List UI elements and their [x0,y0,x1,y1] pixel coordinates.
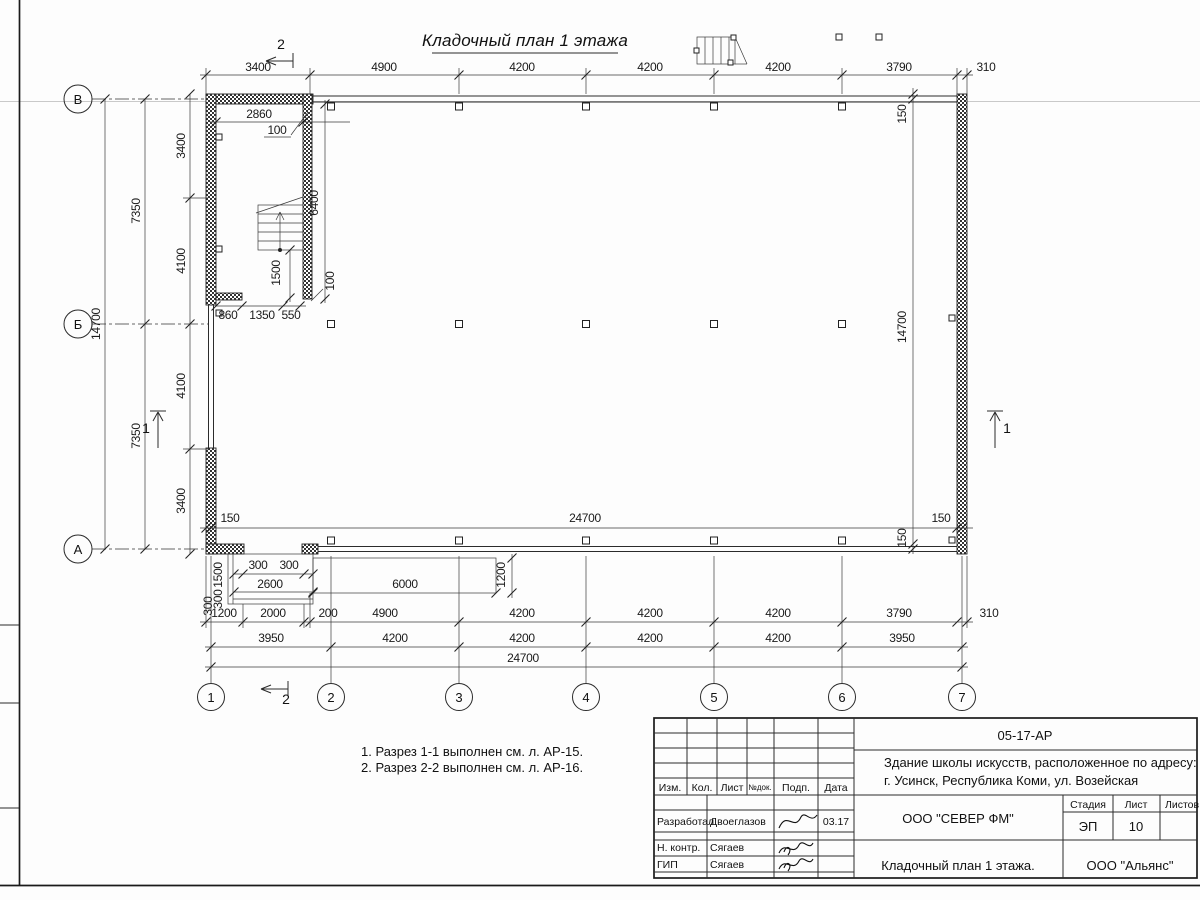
axis-bubble-v: В [74,92,83,107]
dim-label: 4200 [637,631,663,645]
dim-label: 4200 [509,631,535,645]
left-wall-lower [206,448,216,554]
sheet-number: 10 [1129,819,1143,834]
dim-label: 2860 [246,107,272,121]
axis-bubble-4: 4 [582,690,589,705]
col-izm: Изм. [659,782,682,794]
top-dimension-row: 3400 4900 4200 4200 4200 3790 310 [200,60,996,94]
dim-label: 4200 [509,60,535,74]
project-address-line2: г. Усинск, Республика Коми, ул. Возейска… [884,773,1138,788]
axis-bubble-1: 1 [207,690,214,705]
stair-start-dot [278,248,282,252]
dim-label: 4200 [637,606,663,620]
stair [256,197,303,252]
dim-label: 1200 [494,562,508,588]
dim-label: 6400 [307,190,321,216]
stair-stub-wall [216,293,242,300]
note-line-2: 2. Разрез 2-2 выполнен см. л. АР-16. [361,760,583,775]
col-data: Дата [824,782,847,794]
axis-bubble-6: 6 [838,690,845,705]
section-2-bottom-label: 2 [282,691,290,707]
dim-label: 24700 [507,651,539,665]
notes: 1. Разрез 1-1 выполнен см. л. АР-15. 2. … [361,744,583,775]
col-podp: Подп. [782,782,810,794]
signature [779,843,813,855]
developer-date: 03.17 [823,816,849,828]
axis-bubble-7: 7 [958,690,965,705]
dim-label: 1500 [211,562,225,588]
stage-label: Стадия [1070,799,1106,811]
col-kol: Кол. [692,782,713,794]
dim-label: 150 [220,511,240,525]
left-wall-upper [206,94,216,305]
porch-and-steps: 300 300 2600 1500 300 300 6000 1200 [201,554,517,616]
dim-label: 2600 [257,577,283,591]
dim-label: 4200 [509,606,535,620]
dim-label: 300 [248,558,268,572]
dim-label: 4100 [174,248,188,274]
dim-label: 7350 [129,198,143,224]
page-title: Кладочный план 1 этажа [422,31,628,50]
dim-label: 4200 [765,60,791,74]
role-ncontr: Н. контр. [657,842,700,854]
dim-label: 4200 [765,631,791,645]
section-2-top-label: 2 [277,36,285,52]
axis-bubble-b: Б [74,317,83,332]
right-dimension-line: 150 14700 150 [895,88,918,554]
right-wall-masonry [957,94,967,554]
dim-label: 2000 [260,606,286,620]
section-1-left-label: 1 [142,420,150,436]
sheet-title: Кладочный план 1 этажа. [881,858,1035,873]
bottom-dimension-rows: 1200 2000 200 4900 4200 4200 4200 3790 3… [200,556,999,672]
dim-label: 4900 [371,60,397,74]
dim-label: 200 [318,606,338,620]
dim-label: 3400 [174,488,188,514]
dim-label: 6000 [392,577,418,591]
axis-bubble-5: 5 [710,690,717,705]
top-wall-masonry [206,94,313,104]
dim-label: 24700 [569,511,601,525]
stairwell-dimensions: 2860 100 6400 1500 100 860 1350 550 [210,100,350,323]
sheets-label: Листов [1165,799,1200,811]
dim-label: 14700 [895,310,909,342]
stage-value: ЭП [1079,819,1098,834]
dim-label: 150 [931,511,951,525]
drawing-sheet: Кладочный план 1 этажа В Б А 1 2 3 4 5 [0,0,1200,900]
floor-plan-drawing: Кладочный план 1 этажа В Б А 1 2 3 4 5 [0,0,1200,900]
project-address-line1: Здание школы искусств, расположенное по … [884,755,1197,770]
dim-label: 550 [281,308,301,322]
canopy-detail [694,35,747,65]
drawing-title: Кладочный план 1 этажа [422,31,628,53]
developer-name: Двоеглазов [710,816,766,828]
section-1-right-label: 1 [1003,420,1011,436]
signature [779,859,813,871]
axis-bubble-a: А [74,542,83,557]
dim-label: 100 [323,271,337,291]
dim-label: 14700 [89,307,103,339]
col-ndok: №док. [748,783,771,792]
axis-bubble-2: 2 [327,690,334,705]
signature [779,815,817,828]
dim-label: 4200 [382,631,408,645]
dim-label: 4200 [765,606,791,620]
axis-bubble-3: 3 [455,690,462,705]
dim-label: 150 [895,104,909,124]
dim-label: 1200 [211,606,237,620]
col-list: Лист [721,782,744,794]
dim-label: 3950 [889,631,915,645]
dim-label: 310 [976,60,996,74]
column-axes: 1 2 3 4 5 6 7 [198,556,976,711]
dim-label: 150 [895,528,909,548]
dim-label: 860 [218,308,238,322]
dim-label: 3790 [886,60,912,74]
dim-label: 3400 [174,133,188,159]
note-line-1: 1. Разрез 1-1 выполнен см. л. АР-15. [361,744,583,759]
dim-label: 1350 [249,308,275,322]
dim-label: 4100 [174,373,188,399]
title-block: 05-17-АР Здание школы искусств, располож… [654,718,1199,878]
contractor-name: ООО "Альянс" [1087,858,1174,873]
sheet-label: Лист [1125,799,1148,811]
bottom-wall-left [206,544,244,554]
dim-label: 310 [979,606,999,620]
role-developer: Разработал [657,816,714,828]
sheet-frame [0,0,1200,886]
ncontr-name: Сягаев [710,842,745,854]
dim-label: 4200 [637,60,663,74]
inner-span-dimension: 150 24700 150 [200,511,973,533]
dim-label: 100 [267,123,287,137]
dim-label: 7350 [129,423,143,449]
bottom-wall-pier [302,544,318,554]
dim-label: 1500 [269,260,283,286]
company-name: ООО "СЕВЕР ФМ" [902,811,1014,826]
dim-label: 4900 [372,606,398,620]
dim-label: 3790 [886,606,912,620]
gip-name: Сягаев [710,859,745,871]
doc-number: 05-17-АР [998,728,1053,743]
dim-label: 3950 [258,631,284,645]
role-gip: ГИП [657,859,678,871]
dim-label: 300 [279,558,299,572]
